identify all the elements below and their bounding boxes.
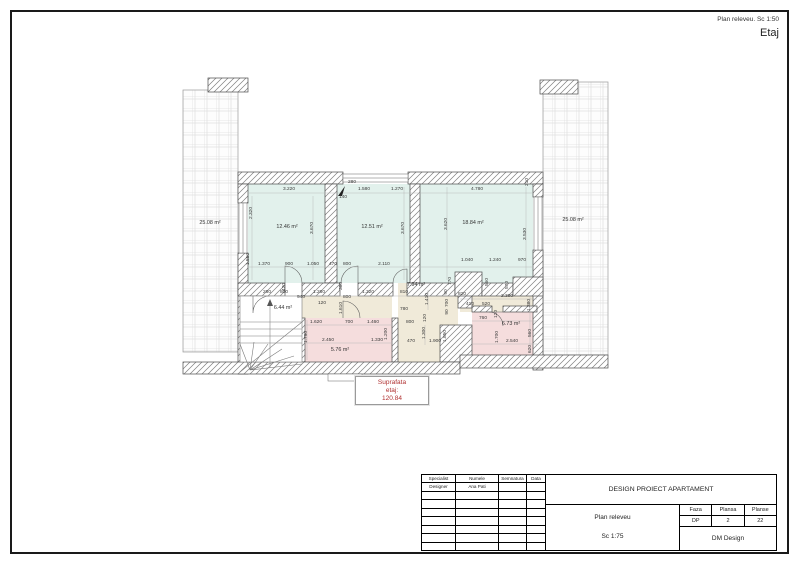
planse-value: 22 <box>745 516 776 526</box>
dimension-label: 140 <box>339 194 347 200</box>
dimension-label: 760 <box>479 315 487 321</box>
room-area-label: 12.51 m² <box>361 224 382 230</box>
dimension-label: 470 <box>407 338 415 344</box>
sign-table-cell <box>499 534 527 542</box>
sign-table-cell <box>499 500 527 508</box>
room-area-label: 12.46 m² <box>276 224 297 230</box>
floor-area-box: Suprafata etaj: 120.84 <box>355 376 429 405</box>
dimension-label: 800 <box>343 294 351 300</box>
dimension-label: 560 <box>484 278 490 286</box>
dimension-label: 800 <box>280 289 288 295</box>
sign-table-cell <box>456 543 499 551</box>
signature-table: SpecialistNumeleSemnaturaDataDesignerAna… <box>422 475 546 550</box>
sign-table-cell: Ana Pati <box>456 483 499 491</box>
dimension-label: 2.110 <box>378 261 390 267</box>
sign-table-cell <box>422 526 456 534</box>
dimension-label: 800 <box>343 261 351 267</box>
dimension-label: 1.300 <box>421 327 427 339</box>
sign-table-cell <box>527 517 545 525</box>
area-line1: Suprafata <box>356 379 428 387</box>
dimension-label: 1.550 <box>245 253 251 265</box>
dimension-label: 280 <box>348 179 356 185</box>
dimension-label: 780 <box>400 306 408 312</box>
faza-label: Faza <box>680 505 712 515</box>
sign-table-cell <box>422 492 456 500</box>
dimension-label: 940 <box>297 294 305 300</box>
dimension-label: 260 <box>263 289 271 295</box>
title-block: SpecialistNumeleSemnaturaDataDesignerAna… <box>421 474 777 551</box>
sign-table-cell <box>499 492 527 500</box>
drawing-scale: Sc 1:75 <box>601 533 623 540</box>
dimension-label: 1.320 <box>362 289 374 295</box>
dimension-label: 1.260 <box>313 289 325 295</box>
company-name: DM Design <box>680 527 776 550</box>
dimension-label: 210 <box>524 178 530 186</box>
dimension-label: 570 <box>504 281 510 289</box>
dimension-label: 970 <box>518 257 526 263</box>
sign-table-cell <box>527 526 545 534</box>
room-area-label: 18.84 m² <box>462 220 483 226</box>
dimension-label: 770 <box>447 277 453 285</box>
sign-table-cell: Designer <box>422 483 456 491</box>
title-block-right: DESIGN PROIECT APARTAMENT Plan releveu S… <box>546 475 776 550</box>
drawing-title-cell: Plan releveu Sc 1:75 <box>546 505 680 550</box>
sign-table-cell <box>456 492 499 500</box>
dimension-label: 560 <box>527 329 533 337</box>
dimension-label: 1.700 <box>494 331 500 343</box>
sign-table-cell <box>527 509 545 517</box>
dimension-label: 360 <box>338 282 344 290</box>
sign-table-cell <box>527 492 545 500</box>
dimension-label: 1.330 <box>371 337 383 343</box>
dimension-label: 700 <box>444 299 450 307</box>
dimension-label: 900 <box>285 261 293 267</box>
dimension-label: 3.620 <box>443 218 449 230</box>
room-area-label: 5.76 m² <box>331 347 349 353</box>
sign-table-cell <box>422 543 456 551</box>
dimension-label: 2.300 <box>501 293 513 299</box>
dimension-label: 470 <box>329 261 337 267</box>
meta-cell: Faza Plansa Planse DP 2 22 DM Design <box>680 505 776 550</box>
dimension-label: 1.270 <box>391 186 403 192</box>
dimension-label: 4.780 <box>471 186 483 192</box>
dimension-label: 1.370 <box>258 261 270 267</box>
dimension-label: 90 <box>443 289 449 295</box>
sign-table-cell <box>527 483 545 491</box>
dimension-label: 120 <box>422 314 428 322</box>
room-area-label: 7.94 m² <box>407 282 425 288</box>
sign-table-cell <box>527 500 545 508</box>
sign-table-cell <box>499 543 527 551</box>
dimension-label: 1.850 <box>442 330 448 342</box>
room-area-label: 25.08 m² <box>562 217 583 223</box>
planse-label: Planse <box>745 505 776 515</box>
dimension-label: 120 <box>318 300 326 306</box>
dimension-label: 120 <box>493 310 499 318</box>
sign-table-cell <box>527 543 545 551</box>
sign-table-cell <box>527 534 545 542</box>
area-line2: etaj: <box>356 387 428 395</box>
area-value: 120.84 <box>356 395 428 403</box>
dimension-label: 1.240 <box>489 257 501 263</box>
dimension-label: 1.900 <box>429 338 441 344</box>
drawing-sheet: Plan releveu. Sc 1:50 Etaj <box>0 0 797 563</box>
dimension-label: 2.320 <box>248 207 254 219</box>
room-area-label: 6.44 m² <box>274 305 292 311</box>
sign-table-cell <box>456 526 499 534</box>
faza-value: DP <box>680 516 712 526</box>
sign-table-header-cell: Data <box>527 475 545 483</box>
dimension-label: 1.580 <box>358 186 370 192</box>
dimension-label: 1.610 <box>338 302 344 314</box>
dimension-label: 1.050 <box>307 261 319 267</box>
sign-table-cell <box>456 517 499 525</box>
project-title: DESIGN PROIECT APARTAMENT <box>546 475 776 505</box>
dimension-label: 90 <box>444 309 450 315</box>
sign-table-cell <box>499 517 527 525</box>
dimension-label: 3.530 <box>522 228 528 240</box>
sign-table-cell <box>499 509 527 517</box>
dimension-label: 2.540 <box>506 338 518 344</box>
dimension-label: 1.790 <box>303 331 309 343</box>
sign-table-cell <box>422 500 456 508</box>
dimension-label: 1.200 <box>383 328 389 340</box>
dimension-label: 1.410 <box>424 293 430 305</box>
dimension-label: 520 <box>482 301 490 307</box>
sign-table-cell <box>499 483 527 491</box>
sign-table-header-cell: Specialist <box>422 475 456 483</box>
dimension-label: 810 <box>400 289 408 295</box>
dimension-label: 700 <box>345 319 353 325</box>
sign-table-header-cell: Numele <box>456 475 499 483</box>
sign-table-cell <box>456 534 499 542</box>
sign-table-cell <box>422 534 456 542</box>
sign-table-cell <box>456 509 499 517</box>
dimension-label: 1.460 <box>367 319 379 325</box>
dimension-label: 620 <box>527 345 533 353</box>
room-area-label: 25.08 m² <box>199 220 220 226</box>
dimension-label: 2.450 <box>322 337 334 343</box>
sign-table-cell <box>422 509 456 517</box>
dimension-label: 1.040 <box>461 257 473 263</box>
sign-table-cell <box>456 500 499 508</box>
plansa-value: 2 <box>712 516 744 526</box>
room-area-label: 6.73 m² <box>502 321 520 327</box>
plansa-label: Plansa <box>712 505 744 515</box>
sign-table-cell <box>422 517 456 525</box>
drawing-name: Plan releveu <box>594 514 630 521</box>
dimension-label: 3.670 <box>400 222 406 234</box>
dimension-label: 800 <box>406 319 414 325</box>
dimension-label: 3.220 <box>283 186 295 192</box>
staircase <box>240 296 302 372</box>
sign-table-cell <box>499 526 527 534</box>
dimension-label: 1.620 <box>310 319 322 325</box>
dimension-label: 1.380 <box>526 299 532 311</box>
sign-table-header-cell: Semnatura <box>499 475 527 483</box>
dimension-label: 3.670 <box>309 222 315 234</box>
dimension-label: 820 <box>458 291 466 297</box>
dimension-label: 410 <box>466 301 474 307</box>
